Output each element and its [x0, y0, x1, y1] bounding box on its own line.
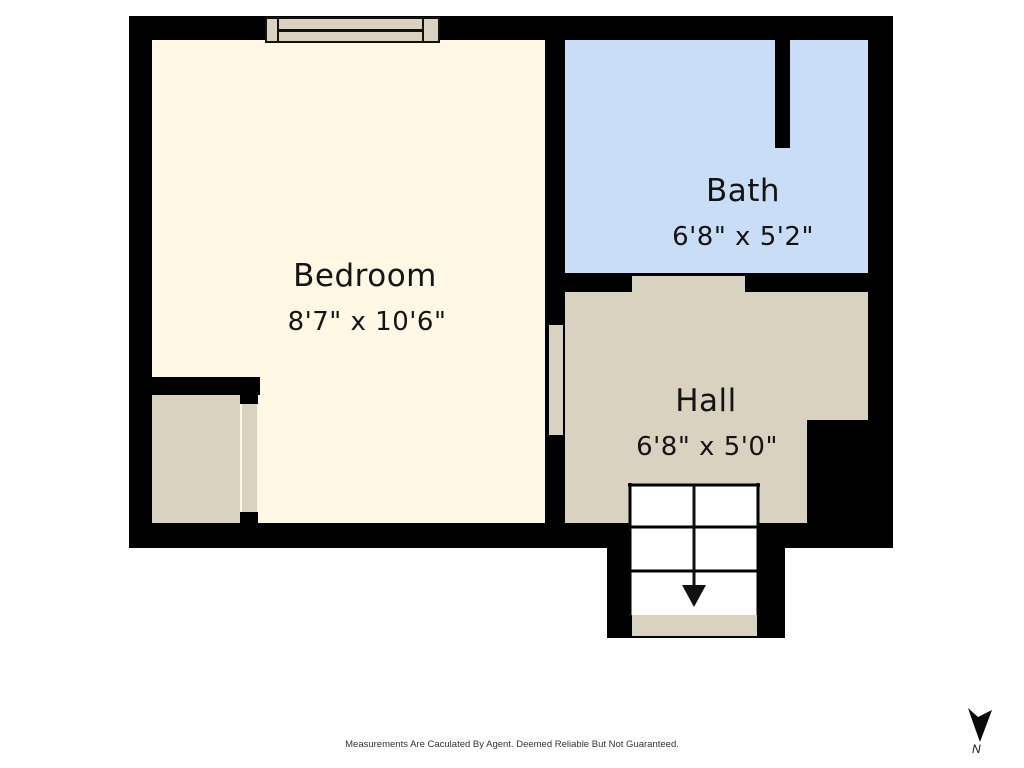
bedroom-door-opening [549, 325, 563, 435]
window-mullion-right [422, 19, 424, 41]
stairs-landing [632, 615, 757, 636]
closet-floor [152, 395, 240, 523]
bath-door-opening [632, 276, 745, 292]
hall-dimensions: 6'8" x 5'0" [636, 432, 778, 462]
closet-wall-stub-top [240, 377, 258, 404]
bedroom-label: Bedroom [293, 258, 437, 294]
closet-wall-stub-bottom [240, 512, 258, 523]
closet-door-opening [242, 404, 257, 512]
floor-plan: Bedroom 8'7" x 10'6" Bath 6'8" x 5'2" Ha… [0, 0, 1024, 768]
window [265, 17, 440, 43]
bath-dimensions: 6'8" x 5'2" [672, 222, 814, 252]
hall-label: Hall [675, 383, 737, 419]
bath-partition-wall [775, 40, 790, 148]
north-label: N [972, 742, 981, 756]
bedroom-dimensions: 8'7" x 10'6" [288, 307, 447, 337]
window-pane-line [279, 29, 422, 32]
bath-label: Bath [706, 173, 780, 209]
disclaimer-text: Measurements Are Caculated By Agent. Dee… [0, 739, 1024, 750]
staircase [628, 483, 760, 615]
compass: N [955, 700, 1005, 762]
